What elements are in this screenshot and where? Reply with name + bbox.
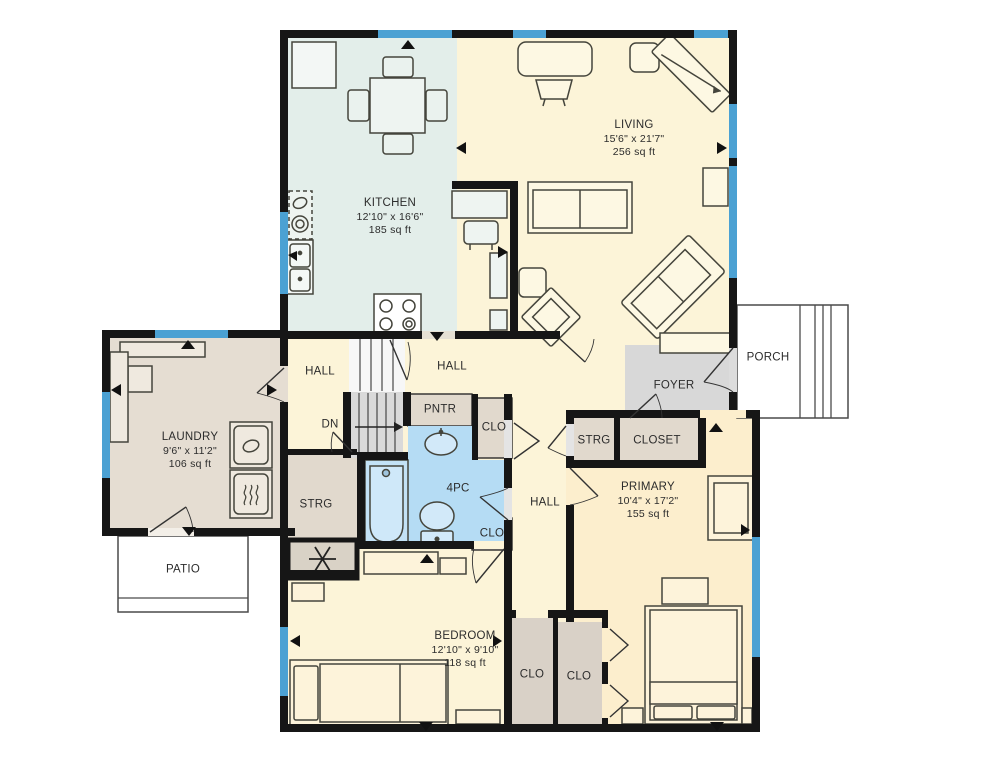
laundry-side-counter xyxy=(110,352,128,442)
dryer xyxy=(230,470,272,518)
foyer-floor xyxy=(625,345,729,418)
kitchen-window-top xyxy=(378,30,452,38)
sofa xyxy=(528,182,632,233)
living-window-right-2 xyxy=(729,166,737,278)
dresser-box xyxy=(440,558,466,574)
bedroom-window-left xyxy=(280,627,288,696)
strg-left-floor xyxy=(288,455,357,540)
clo-primary-floor xyxy=(558,622,602,726)
bedroom-nightstand xyxy=(456,710,500,724)
patio-slab xyxy=(118,536,248,612)
laundry-window-left xyxy=(102,392,110,478)
living-window-top-right xyxy=(694,30,728,38)
laundry-window-top xyxy=(155,330,228,338)
stairs-upper-flight xyxy=(349,338,405,392)
clo-bedroom-floor xyxy=(512,618,553,726)
living-window-right-1 xyxy=(729,104,737,158)
primary-bed xyxy=(645,606,742,724)
strg-right-floor xyxy=(574,418,614,460)
nightstand-right xyxy=(742,708,752,724)
living-window-top-left xyxy=(513,30,546,38)
floor-plan-drawing xyxy=(0,0,993,768)
laundry-counter xyxy=(120,342,205,357)
side-square-table xyxy=(630,43,659,72)
kitchen-sink xyxy=(287,240,313,294)
kitchen-prep-counter xyxy=(289,191,312,239)
closet-primary-floor xyxy=(620,418,698,460)
washer xyxy=(230,422,272,468)
floor-plan-image: KITCHEN 12'10" x 16'6" 185 sq ft LIVING … xyxy=(0,0,993,768)
bathtub xyxy=(365,460,408,548)
refrigerator xyxy=(292,42,336,88)
cooktop xyxy=(374,294,421,335)
nightstand-left xyxy=(622,708,643,724)
pantry-floor xyxy=(408,394,472,426)
bedroom-bed xyxy=(290,660,448,726)
bed-bench xyxy=(662,578,708,604)
primary-window-right xyxy=(752,537,760,657)
toilet xyxy=(420,502,454,547)
laundry-cabinet xyxy=(128,366,152,392)
kitchen-window-left xyxy=(280,212,288,294)
side-table xyxy=(519,268,546,297)
wall-table xyxy=(703,168,728,206)
coffee-table xyxy=(660,333,731,353)
bedroom-cabinet xyxy=(292,583,324,601)
